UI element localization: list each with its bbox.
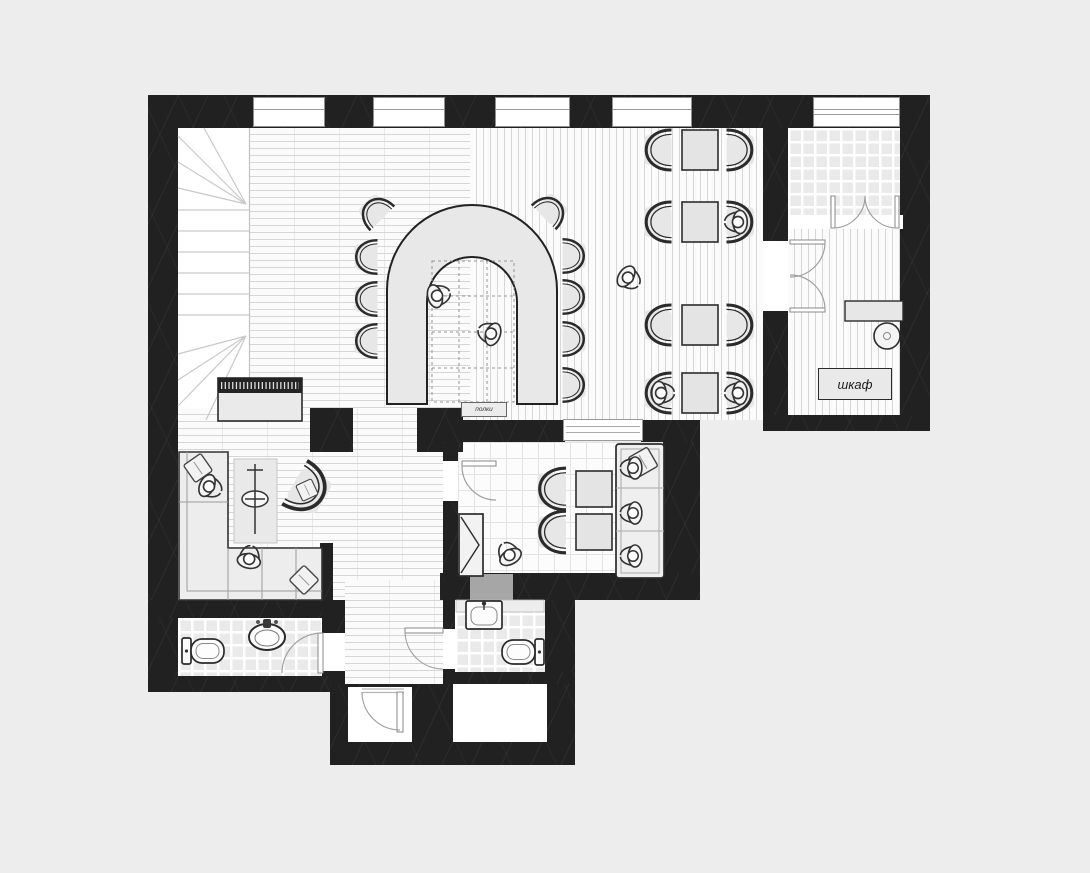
wall-wc-left-east-upper xyxy=(322,600,345,634)
floor-terrace-vestibule xyxy=(788,128,903,216)
entry-mat xyxy=(470,574,513,604)
wall-corridor-right-upper xyxy=(443,580,455,630)
pass-through-counter xyxy=(563,419,643,441)
wall-right xyxy=(900,95,930,430)
floor-dining-area xyxy=(470,128,763,420)
wardrobe-label: шкаф xyxy=(818,368,892,400)
wall-bottom-left xyxy=(148,676,345,692)
wall-vestibule-left-upper xyxy=(763,128,788,241)
wall-private-top-left xyxy=(458,420,565,442)
floor-entry-porch xyxy=(453,684,547,742)
wall-private-top-right xyxy=(641,420,700,442)
shelves-label: полки xyxy=(461,402,507,417)
window-2 xyxy=(373,97,445,127)
doorway-wardrobe xyxy=(763,241,788,311)
floor-corridor xyxy=(345,580,443,684)
doorway-private-room xyxy=(443,461,458,501)
floor-bar-area xyxy=(250,128,470,408)
window-5 xyxy=(813,97,900,127)
window-1 xyxy=(253,97,325,127)
window-3 xyxy=(495,97,570,127)
doorway-vestibule xyxy=(788,215,903,229)
floor-wc-left xyxy=(178,618,322,676)
wall-lounge-stub xyxy=(320,543,333,600)
wall-hall-private-lower xyxy=(443,500,458,582)
wall-hall-private-upper xyxy=(443,442,458,462)
floor-private-room xyxy=(458,442,663,573)
wall-wc-left-top xyxy=(148,600,332,618)
wall-column xyxy=(310,408,353,452)
doorway-entrance xyxy=(348,687,412,742)
doorway-wc-left xyxy=(322,633,345,671)
wall-wardrobe-bottom xyxy=(763,415,930,431)
wall-vestibule-left-lower xyxy=(763,311,788,416)
floor-wc-right xyxy=(455,600,545,672)
window-4 xyxy=(612,97,692,127)
floor-plan: шкаф полки xyxy=(0,0,1090,873)
doorway-wc-right xyxy=(443,629,455,669)
floor-staircase xyxy=(178,128,250,420)
wall-private-right xyxy=(663,442,700,575)
